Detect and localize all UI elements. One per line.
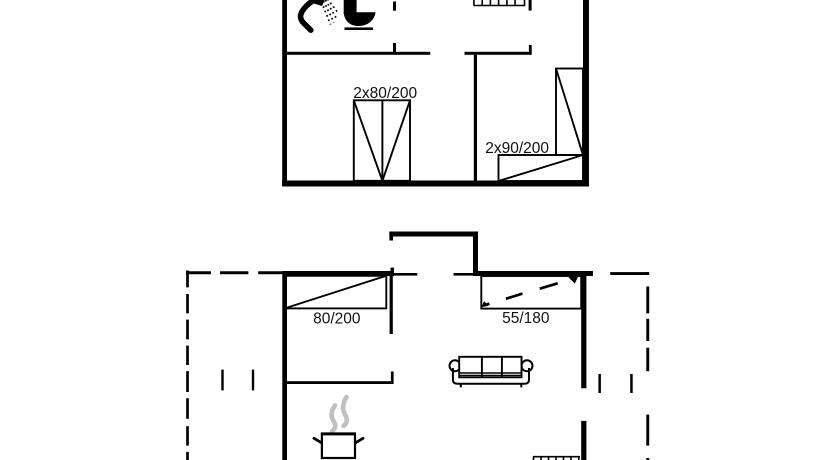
- svg-text:2x80/200: 2x80/200: [353, 85, 417, 102]
- svg-text:80/200: 80/200: [313, 311, 361, 328]
- svg-text:55/180: 55/180: [502, 310, 550, 327]
- svg-text:2x90/200: 2x90/200: [485, 140, 549, 157]
